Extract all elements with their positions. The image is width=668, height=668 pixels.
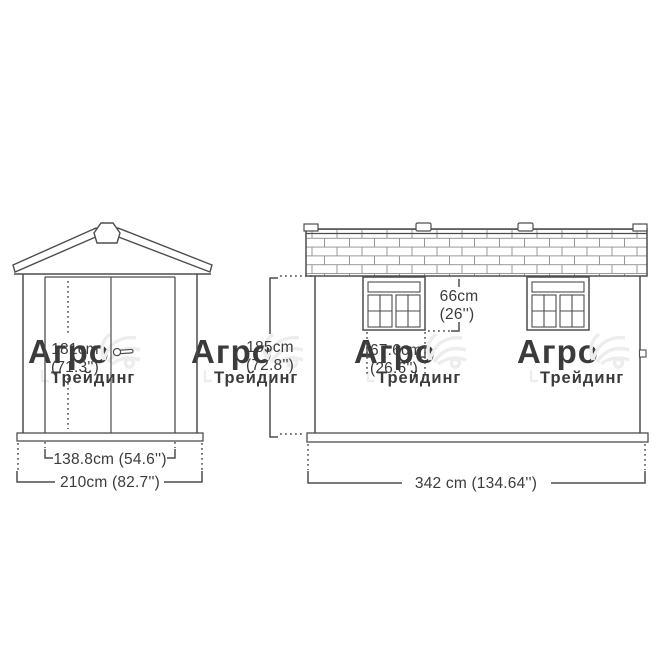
front-base-plinth — [17, 433, 203, 441]
window-sash — [532, 295, 556, 327]
watermark-sub-text: Трейдинг — [540, 369, 624, 387]
watermark: Агро Трейдинг — [517, 333, 629, 387]
watermark-brand-text: Агро — [517, 333, 599, 370]
side-height-cm-label: 185cm — [246, 339, 294, 356]
roof-slope-left — [13, 228, 98, 272]
window-sash — [396, 295, 420, 327]
front-height-in-label: (71.3'') — [51, 359, 99, 376]
side-height-dimension: 185cm (72.8'') — [246, 276, 312, 437]
side-overall-length-dimension: 342 cm (134.64'') — [308, 444, 645, 492]
watermark-bracket — [205, 370, 212, 381]
shingle-roof — [304, 223, 647, 276]
window-height-in-label: (26'') — [440, 306, 475, 323]
window-header — [532, 282, 584, 292]
side-overall-length-label: 342 cm (134.64'') — [415, 475, 537, 492]
side-latch — [640, 350, 647, 357]
roof-vent-tab — [518, 223, 533, 231]
window-height-cm-label: 66cm — [440, 288, 479, 305]
roof-slope-right — [116, 228, 212, 272]
window-header — [368, 282, 420, 292]
window-sash — [368, 295, 392, 327]
side-window — [527, 277, 589, 330]
window-height-dimension: 66cm (26'') — [428, 279, 478, 331]
shed-dimensions-diagram: Агро Трейдинг Агро Трейдинг Агро — [0, 0, 668, 668]
diagram-canvas: Агро Трейдинг Агро Трейдинг Агро — [0, 0, 668, 668]
front-height-cm-label: 181cm — [51, 341, 99, 358]
roof-end-cap-left — [304, 224, 318, 231]
roof-vent-tab — [416, 223, 431, 231]
window-width-cm-label: 67.6cm — [370, 342, 422, 359]
front-height-dimension: 181cm (71.3'') — [51, 281, 99, 429]
side-window — [363, 277, 425, 330]
window-sash — [560, 295, 584, 327]
front-door-width-dimension: 138.8cm (54.6'') — [45, 442, 175, 468]
side-height-in-label: (72.8'') — [246, 357, 294, 374]
roof-end-cap-right — [633, 224, 647, 231]
side-base-plinth — [307, 433, 648, 442]
shingle-field — [306, 229, 647, 276]
roof-apex-cap — [94, 223, 120, 243]
window-width-in-label: (26.6'') — [370, 360, 418, 377]
watermark-bracket — [531, 370, 538, 381]
gable-roof — [13, 223, 212, 274]
front-overall-width-label: 210cm (82.7'') — [60, 474, 160, 491]
front-door-width-label: 138.8cm (54.6'') — [53, 451, 166, 468]
